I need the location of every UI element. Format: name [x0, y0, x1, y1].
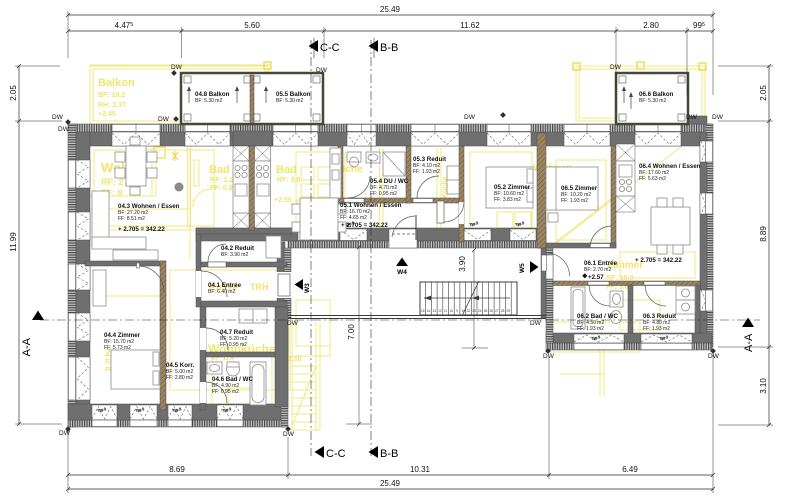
- svg-text:FF: 1.93 m2: FF: 1.93 m2: [561, 198, 588, 204]
- svg-text:BF: 6.40 m2: BF: 6.40 m2: [208, 289, 235, 295]
- svg-text:FF: 1.93 m2: FF: 1.93 m2: [643, 326, 670, 332]
- svg-text:15: 15: [421, 309, 425, 313]
- svg-text:06.4 Wohnen / Essen: 06.4 Wohnen / Essen: [639, 163, 701, 170]
- svg-text:04.3 Wohnen / Essen: 04.3 Wohnen / Essen: [118, 203, 180, 210]
- svg-text:8.69: 8.69: [169, 465, 185, 474]
- svg-text:W5: W5: [519, 263, 526, 273]
- svg-text:BF: 5.30 m2: BF: 5.30 m2: [276, 98, 303, 104]
- svg-text:04.2 Reduit: 04.2 Reduit: [221, 245, 254, 252]
- svg-text:BF: 3.90 m2: BF: 3.90 m2: [221, 252, 248, 258]
- svg-text:DW: DW: [283, 431, 295, 438]
- svg-text:RF: 3.8: RF: 3.8: [277, 177, 300, 184]
- svg-text:C-C: C-C: [326, 448, 346, 460]
- svg-text:9: 9: [456, 309, 458, 313]
- svg-text:06.3 Reduit: 06.3 Reduit: [643, 313, 676, 320]
- svg-text:DW: DW: [686, 114, 698, 121]
- svg-text:FF: 1.93 m2: FF: 1.93 m2: [577, 326, 604, 332]
- svg-text:13: 13: [432, 309, 436, 313]
- svg-text:W4: W4: [397, 269, 407, 276]
- svg-text:DW: DW: [708, 353, 720, 360]
- svg-text:27: 27: [495, 309, 499, 313]
- svg-text:05.3 Reduit: 05.3 Reduit: [413, 156, 446, 163]
- svg-text:BF: 5.30 m2: BF: 5.30 m2: [195, 98, 222, 104]
- svg-text:A-A: A-A: [21, 337, 33, 356]
- svg-text:Bad: Bad: [209, 164, 230, 176]
- svg-text:A-A: A-A: [743, 333, 755, 352]
- svg-text:8.89: 8.89: [759, 226, 768, 242]
- svg-text:FF: 1.93 m2: FF: 1.93 m2: [413, 169, 440, 175]
- svg-text:C-C: C-C: [320, 42, 340, 54]
- svg-text:04.6 Bad / WC: 04.6 Bad / WC: [212, 376, 253, 383]
- svg-text:22: 22: [467, 309, 471, 313]
- svg-text:2.80: 2.80: [643, 21, 659, 30]
- svg-text:DW: DW: [287, 320, 299, 327]
- svg-text:RF: 1.2: RF: 1.2: [210, 177, 233, 184]
- svg-text:24: 24: [478, 309, 482, 313]
- svg-text:11.62: 11.62: [460, 21, 480, 30]
- svg-text:+ 2.705 = 342.22: + 2.705 = 342.22: [341, 222, 388, 229]
- svg-text:DW: DW: [158, 116, 170, 123]
- svg-text:29: 29: [507, 309, 511, 313]
- svg-text:05.4 DU / WC: 05.4 DU / WC: [370, 178, 409, 185]
- svg-text:04.5 Korr.: 04.5 Korr.: [166, 362, 194, 369]
- svg-text:DW: DW: [464, 114, 476, 121]
- svg-text:DW: DW: [171, 64, 183, 71]
- svg-text:+2.45: +2.45: [98, 111, 116, 118]
- svg-text:11: 11: [444, 309, 448, 313]
- svg-text:+2.50: +2.50: [274, 197, 292, 204]
- svg-text:FF: 0.95 m2: FF: 0.95 m2: [370, 191, 397, 197]
- svg-text:RH: 2.37: RH: 2.37: [98, 102, 126, 109]
- svg-text:DW: DW: [59, 430, 71, 437]
- svg-text:14: 14: [427, 309, 431, 313]
- svg-text:RF: 27: RF: 27: [101, 177, 129, 187]
- svg-text:2.05: 2.05: [759, 85, 768, 101]
- svg-text:+ 2.705 = 342.22: + 2.705 = 342.22: [635, 257, 682, 264]
- svg-text:DW: DW: [52, 114, 64, 121]
- svg-text:26: 26: [489, 309, 493, 313]
- svg-text:06.2 Bad / WC: 06.2 Bad / WC: [577, 313, 618, 320]
- svg-text:FF: 5.63 m2: FF: 5.63 m2: [639, 176, 666, 182]
- svg-text:TRH: TRH: [250, 282, 269, 292]
- svg-text:FF: 5.73 m2: FF: 5.73 m2: [104, 345, 131, 351]
- svg-text:2.05: 2.05: [9, 85, 18, 101]
- svg-text:DW: DW: [58, 126, 70, 133]
- svg-text:10: 10: [450, 309, 454, 313]
- svg-text:2.50: 2.50: [288, 356, 302, 363]
- svg-text:10.31: 10.31: [410, 465, 431, 474]
- svg-text:+2.57: +2.57: [588, 274, 604, 281]
- svg-text:FF: 3.83 m2: FF: 3.83 m2: [494, 197, 521, 203]
- svg-text:6.49: 6.49: [622, 465, 638, 474]
- svg-text:BF: 5.30 m2: BF: 5.30 m2: [639, 98, 666, 104]
- svg-text:BF: 18.2: BF: 18.2: [98, 92, 125, 99]
- svg-text:04.1 Entrée: 04.1 Entrée: [208, 282, 242, 289]
- svg-text:05.2 Zimmer: 05.2 Zimmer: [494, 184, 531, 191]
- svg-text:25.49: 25.49: [380, 479, 401, 488]
- svg-text:06.1 Entrée: 06.1 Entrée: [584, 260, 618, 267]
- svg-text:5.60: 5.60: [244, 21, 260, 30]
- svg-text:25.49: 25.49: [380, 5, 401, 14]
- svg-text:05.1 Wohnen / Essen: 05.1 Wohnen / Essen: [340, 202, 402, 209]
- svg-text:25: 25: [484, 309, 488, 313]
- svg-text:BF: 2.70 m2: BF: 2.70 m2: [584, 267, 611, 273]
- svg-text:04.8 Balkon: 04.8 Balkon: [195, 91, 230, 98]
- svg-text:FF: 0.9: FF: 0.9: [210, 185, 233, 192]
- svg-text:FF: 0.95 m2: FF: 0.95 m2: [220, 342, 247, 348]
- svg-text:DW: DW: [610, 64, 622, 71]
- svg-text:06.6 Balkon: 06.6 Balkon: [639, 91, 674, 98]
- svg-text:05.5 Balkon: 05.5 Balkon: [276, 91, 311, 98]
- svg-text:7.00: 7.00: [347, 324, 356, 340]
- svg-text:DW: DW: [530, 320, 542, 327]
- svg-text:W3: W3: [304, 283, 311, 293]
- svg-text:DW: DW: [712, 114, 724, 121]
- svg-text:04.7 Reduit: 04.7 Reduit: [220, 329, 253, 336]
- svg-text:DW: DW: [316, 67, 328, 74]
- svg-text:B-B: B-B: [380, 448, 398, 460]
- svg-text:Bad: Bad: [276, 164, 297, 176]
- svg-text:12: 12: [438, 309, 442, 313]
- svg-text:11.99: 11.99: [9, 232, 18, 252]
- svg-text:FF: 2.80 m2: FF: 2.80 m2: [166, 375, 193, 381]
- svg-text:Balkon: Balkon: [98, 77, 135, 89]
- svg-text:3.10: 3.10: [759, 378, 768, 394]
- svg-text:06.5 Zimmer: 06.5 Zimmer: [561, 185, 598, 192]
- svg-text:FF: 8.51 m2: FF: 8.51 m2: [118, 216, 145, 222]
- svg-text:B-B: B-B: [380, 42, 398, 54]
- svg-text:FF: 0.95 m2: FF: 0.95 m2: [212, 389, 239, 395]
- svg-text:+ 2.705 = 342.22: + 2.705 = 342.22: [118, 226, 165, 233]
- svg-text:DW: DW: [543, 353, 555, 360]
- svg-text:28: 28: [501, 309, 505, 313]
- svg-text:3.90: 3.90: [458, 256, 467, 272]
- svg-text:04.4 Zimmer: 04.4 Zimmer: [104, 332, 141, 339]
- svg-text:FF: 4.65 m2: FF: 4.65 m2: [340, 215, 367, 221]
